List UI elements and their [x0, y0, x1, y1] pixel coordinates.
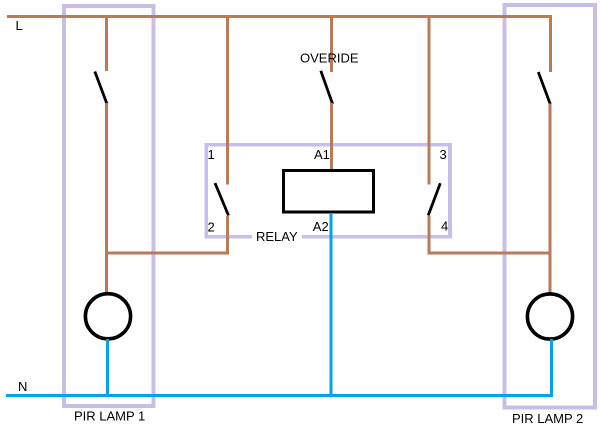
svg-text:4: 4	[441, 218, 448, 233]
svg-text:N: N	[18, 379, 27, 394]
svg-text:A1: A1	[314, 147, 330, 162]
svg-text:OVERIDE: OVERIDE	[300, 51, 359, 66]
svg-text:A2: A2	[313, 219, 329, 234]
svg-text:PIR LAMP 1: PIR LAMP 1	[74, 409, 145, 424]
svg-text:PIR LAMP 2: PIR LAMP 2	[512, 411, 583, 426]
svg-text:1: 1	[208, 147, 215, 162]
svg-text:2: 2	[208, 220, 215, 235]
svg-text:3: 3	[440, 147, 447, 162]
svg-text:RELAY: RELAY	[256, 229, 298, 244]
svg-text:L: L	[16, 18, 23, 33]
